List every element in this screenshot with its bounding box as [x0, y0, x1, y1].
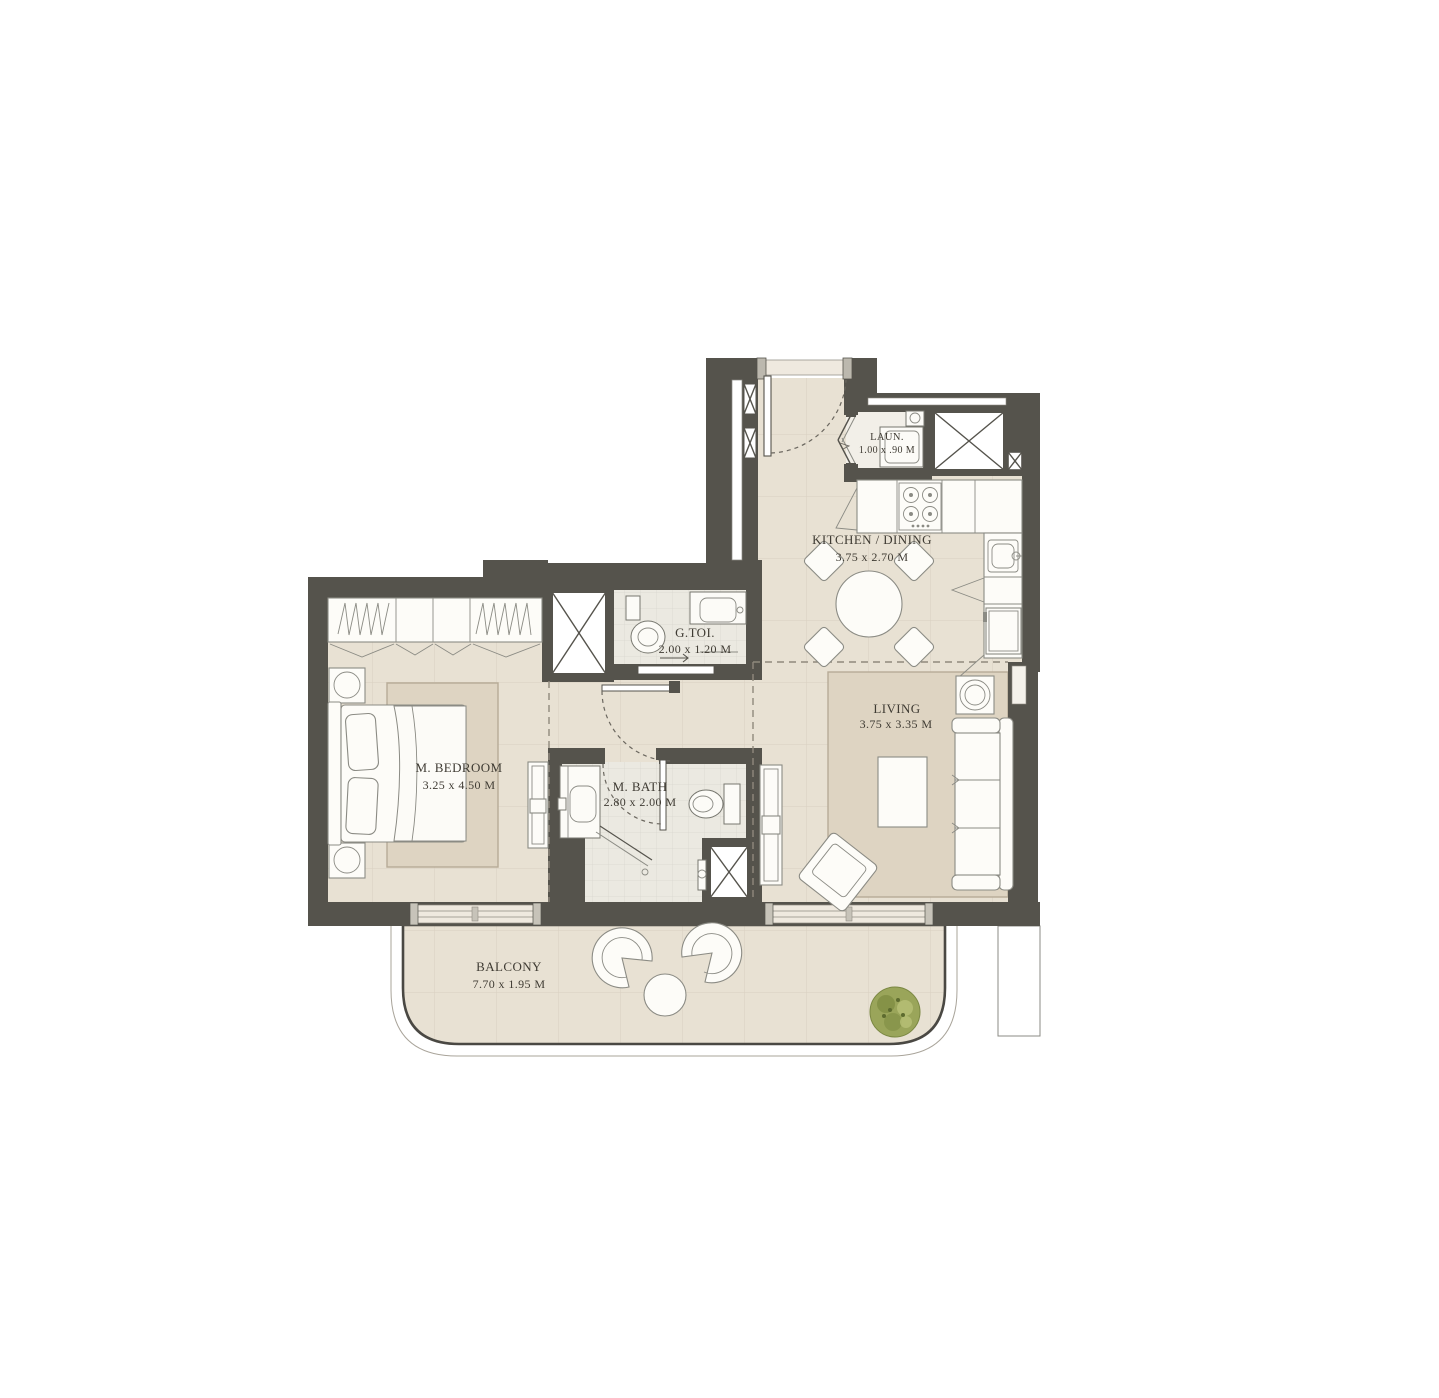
laundry-dims: 1.00 x .90 M	[859, 445, 915, 456]
coffee-table	[878, 757, 927, 827]
balcony-dims: 7.70 x 1.95 M	[473, 977, 546, 991]
mbath-label: M. BATH	[613, 779, 668, 794]
bedroom-dims: 3.25 x 4.50 M	[423, 778, 496, 792]
wall-window-slot	[868, 398, 1006, 405]
shower-floor	[583, 843, 708, 902]
laundry-label: LAUN.	[870, 432, 904, 443]
shower-head-icon	[698, 860, 706, 890]
side-table	[956, 676, 994, 714]
shaft-x-icon	[710, 846, 748, 898]
pillow	[345, 713, 379, 771]
bedroom-tv-console	[528, 762, 548, 848]
kitchen-counter-top	[857, 480, 1022, 533]
balcony-label: BALCONY	[476, 959, 542, 974]
floor-plan-page: M. BEDROOM 3.25 x 4.50 M G.TOI. 2.00 x 1…	[0, 0, 1439, 1398]
mbath-dims: 2.80 x 2.00 M	[604, 795, 677, 809]
bedroom-label: M. BEDROOM	[415, 760, 502, 775]
living-tv-console	[760, 765, 782, 885]
riser-x-icon	[744, 384, 756, 414]
living-dims: 3.75 x 3.35 M	[860, 717, 933, 731]
sofa	[952, 718, 1013, 890]
living-balcony-door	[765, 903, 933, 925]
living-wall-niche	[1012, 666, 1026, 704]
hallway-door-leaf	[602, 685, 672, 691]
bedroom-balcony-door	[410, 903, 541, 925]
toilet-tank	[626, 596, 640, 620]
fridge-icon	[983, 608, 1021, 654]
gtoi-dims: 2.00 x 1.20 M	[659, 642, 732, 656]
living-label: LIVING	[873, 701, 920, 716]
riser-x-icon	[744, 428, 756, 458]
kitchen-label: KITCHEN / DINING	[812, 532, 932, 547]
toilet-icon	[689, 790, 723, 818]
pillow	[346, 777, 379, 834]
shaft-x-icon	[934, 412, 1004, 470]
toilet-tank	[724, 784, 740, 824]
dining-table	[836, 571, 902, 637]
gtoi-label: G.TOI.	[675, 625, 715, 640]
adjacent-balcony-outline	[998, 926, 1040, 1036]
floor-plan: M. BEDROOM 3.25 x 4.50 M G.TOI. 2.00 x 1…	[0, 0, 1439, 1398]
balcony-table	[644, 974, 686, 1016]
faucet-icon	[558, 798, 566, 810]
shaft-x-icon	[552, 592, 606, 674]
shaft-x-icon	[1008, 452, 1022, 470]
kitchen-dims: 3.75 x 2.70 M	[836, 550, 909, 564]
entry-door-leaf	[764, 376, 771, 456]
plant-icon	[870, 987, 920, 1037]
